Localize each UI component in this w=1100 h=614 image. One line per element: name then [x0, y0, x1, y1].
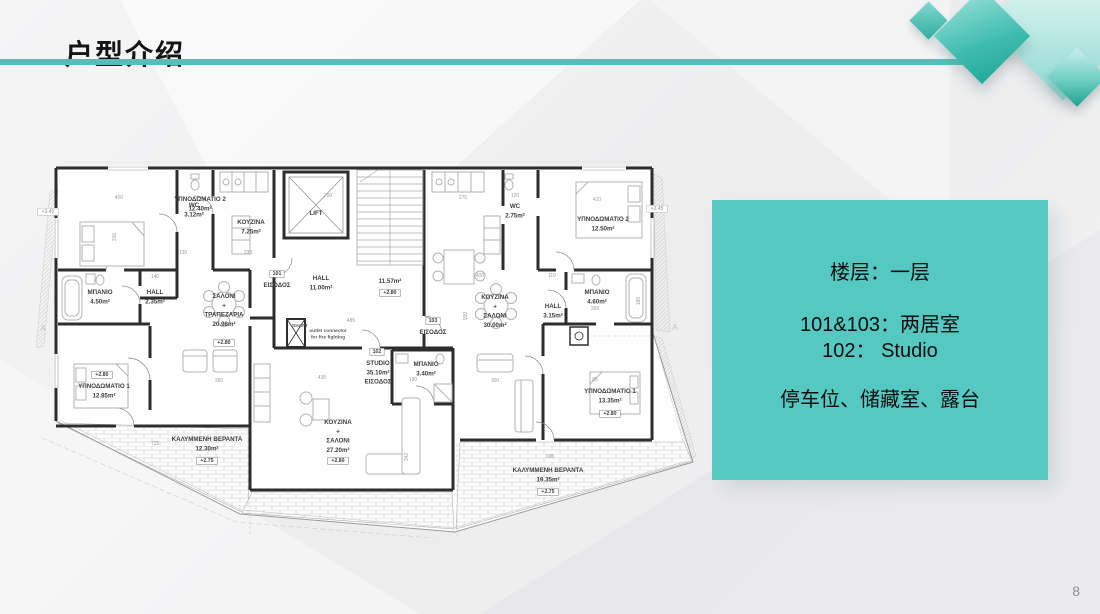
- svg-text:WC: WC: [189, 202, 200, 209]
- svg-text:265: 265: [591, 306, 600, 312]
- svg-text:WC: WC: [510, 203, 521, 210]
- svg-text:695: 695: [546, 454, 555, 460]
- svg-text:+: +: [336, 428, 340, 435]
- svg-text:310: 310: [112, 233, 118, 242]
- svg-text:+: +: [222, 302, 226, 309]
- svg-text:3.40m²: 3.40m²: [416, 370, 436, 377]
- svg-text:+2.80: +2.80: [383, 290, 396, 296]
- site-boundary-hatch: [654, 174, 670, 332]
- svg-text:4.50m²: 4.50m²: [90, 298, 110, 305]
- info-line-unit-102: 102： Studio: [712, 338, 1048, 364]
- info-line-amenities: 停车位、储藏室、露台: [712, 387, 1048, 413]
- svg-text:A: A: [672, 323, 678, 332]
- svg-text:ΕΙΣΟΔΟΣ: ΕΙΣΟΔΟΣ: [364, 379, 391, 386]
- svg-text:900: 900: [463, 312, 469, 321]
- svg-text:3.15m²: 3.15m²: [543, 312, 563, 319]
- veranda-right: [456, 442, 692, 529]
- svg-text:ΕΙΣΟΔΟΣ: ΕΙΣΟΔΟΣ: [419, 329, 446, 336]
- svg-text:ΚΑΛΥΜΜΕΝΗ ΒΕΡΑΝΤΑ: ΚΑΛΥΜΜΕΝΗ ΒΕΡΑΝΤΑ: [513, 467, 584, 474]
- svg-text:ΚΟΥΖΙΝΑ: ΚΟΥΖΙΝΑ: [237, 219, 265, 226]
- svg-text:ΥΠΝΟΔΩΜΑΤΙΟ 2: ΥΠΝΟΔΩΜΑΤΙΟ 2: [174, 196, 226, 203]
- svg-text:+2.80: +2.80: [217, 340, 230, 346]
- svg-text:+3.45: +3.45: [42, 209, 55, 215]
- svg-text:30.00m²: 30.00m²: [483, 322, 506, 329]
- accent-underline: [0, 59, 963, 65]
- svg-text:2.35m²: 2.35m²: [145, 298, 165, 305]
- svg-text:11.57m²: 11.57m²: [379, 278, 402, 285]
- svg-text:ΚΑΛΥΜΜΕΝΗ ΒΕΡΑΝΤΑ: ΚΑΛΥΜΜΕΝΗ ΒΕΡΑΝΤΑ: [172, 436, 243, 443]
- svg-text:400: 400: [115, 195, 124, 201]
- svg-text:180: 180: [636, 297, 642, 306]
- slide: { "slide": { "title": "户型介绍", "page_numb…: [0, 0, 1100, 614]
- svg-text:ΜΠΑΝΙΟ: ΜΠΑΝΙΟ: [87, 289, 112, 296]
- svg-text:485: 485: [347, 318, 356, 324]
- svg-text:HALL: HALL: [545, 303, 562, 310]
- info-line-units-101-103: 101&103：两居室: [712, 312, 1048, 338]
- svg-text:230: 230: [244, 250, 253, 256]
- svg-text:3.12m²: 3.12m²: [184, 211, 204, 218]
- svg-text:ΜΠΑΝΙΟ: ΜΠΑΝΙΟ: [413, 361, 438, 368]
- svg-text:SHAFT: SHAFT: [292, 323, 308, 329]
- svg-text:ΕΙΣΟΔΟΣ: ΕΙΣΟΔΟΣ: [263, 282, 290, 289]
- svg-text:85: 85: [592, 377, 598, 383]
- page-title: 户型介绍: [65, 33, 185, 73]
- svg-text:27.20m²: 27.20m²: [326, 447, 349, 454]
- svg-text:ΥΠΝΟΔΩΜΑΤΙΟ 1: ΥΠΝΟΔΩΜΑΤΙΟ 1: [584, 388, 636, 395]
- svg-text:103: 103: [429, 318, 438, 324]
- svg-text:101: 101: [273, 271, 282, 277]
- svg-text:ΣΑΛΟΝΙ: ΣΑΛΟΝΙ: [483, 313, 506, 320]
- svg-text:435: 435: [318, 375, 327, 381]
- svg-text:130: 130: [179, 250, 188, 256]
- info-box: 楼层：一层 101&103：两居室 102： Studio 停车位、储藏室、露台: [712, 200, 1048, 480]
- svg-text:STUDIO: STUDIO: [366, 360, 390, 367]
- svg-text:ΣΑΛΟΝΙ: ΣΑΛΟΝΙ: [326, 438, 349, 445]
- svg-text:HALL: HALL: [147, 289, 164, 296]
- svg-text:+2.80: +2.80: [331, 458, 344, 464]
- svg-text:A: A: [40, 324, 46, 333]
- svg-text:11.00m²: 11.00m²: [310, 284, 333, 291]
- svg-text:110: 110: [548, 273, 556, 279]
- svg-text:ΚΟΥΖΙΝΑ: ΚΟΥΖΙΝΑ: [324, 419, 352, 426]
- svg-text:2.75m²: 2.75m²: [505, 212, 525, 219]
- svg-text:342: 342: [404, 453, 410, 462]
- svg-text:4.60m²: 4.60m²: [587, 298, 607, 305]
- svg-text:270: 270: [459, 195, 468, 201]
- svg-text:+2.80: +2.80: [603, 411, 616, 417]
- svg-text:12.30m²: 12.30m²: [195, 445, 218, 452]
- svg-text:12.50m²: 12.50m²: [591, 225, 614, 232]
- svg-text:350: 350: [215, 378, 224, 384]
- page-number: 8: [1072, 583, 1080, 599]
- svg-text:725: 725: [151, 441, 160, 447]
- svg-text:12.85m²: 12.85m²: [92, 392, 115, 399]
- svg-text:+: +: [493, 303, 497, 310]
- svg-text:ΤΡΑΠΕΖΑΡΙΑ: ΤΡΑΠΕΖΑΡΙΑ: [204, 312, 244, 319]
- svg-text:300: 300: [491, 378, 500, 384]
- svg-text:7.25m²: 7.25m²: [241, 228, 261, 235]
- svg-text:ΥΠΝΟΔΩΜΑΤΙΟ 1: ΥΠΝΟΔΩΜΑΤΙΟ 1: [78, 383, 130, 390]
- svg-text:ΣΑΛΟΝΙ: ΣΑΛΟΝΙ: [212, 293, 235, 300]
- svg-text:+2.75: +2.75: [200, 458, 213, 464]
- svg-text:for fire fighting: for fire fighting: [311, 334, 345, 340]
- svg-text:HALL: HALL: [313, 275, 330, 282]
- svg-text:400: 400: [476, 273, 485, 279]
- svg-text:ΚΟΥΖΙΝΑ: ΚΟΥΖΙΝΑ: [481, 294, 509, 301]
- info-line-floor: 楼层：一层: [712, 260, 1048, 286]
- svg-text:190: 190: [409, 377, 418, 383]
- svg-text:+2.75: +2.75: [541, 489, 554, 495]
- svg-text:LIFT: LIFT: [309, 210, 322, 217]
- svg-text:120: 120: [511, 193, 520, 199]
- svg-text:19.35m²: 19.35m²: [536, 476, 559, 483]
- svg-text:ΥΠΝΟΔΩΜΑΤΙΟ 2: ΥΠΝΟΔΩΜΑΤΙΟ 2: [577, 216, 629, 223]
- svg-text:ΜΠΑΝΙΟ: ΜΠΑΝΙΟ: [584, 289, 609, 296]
- svg-text:410: 410: [593, 197, 602, 203]
- svg-text:outlet connector: outlet connector: [309, 328, 347, 334]
- svg-text:+3.45: +3.45: [651, 206, 664, 212]
- svg-text:102: 102: [373, 349, 382, 355]
- svg-text:20.98m²: 20.98m²: [212, 321, 235, 328]
- svg-text:200: 200: [324, 193, 333, 199]
- svg-text:+2.80: +2.80: [95, 372, 108, 378]
- floor-plan-image: ΥΠΝΟΔΩΜΑΤΙΟ 212.40m²WC3.12m²ΚΟΥΖΙΝΑ7.25m…: [36, 158, 700, 538]
- svg-text:35.10m²: 35.10m²: [366, 369, 389, 376]
- svg-text:13.35m²: 13.35m²: [598, 397, 621, 404]
- svg-text:140: 140: [151, 274, 160, 280]
